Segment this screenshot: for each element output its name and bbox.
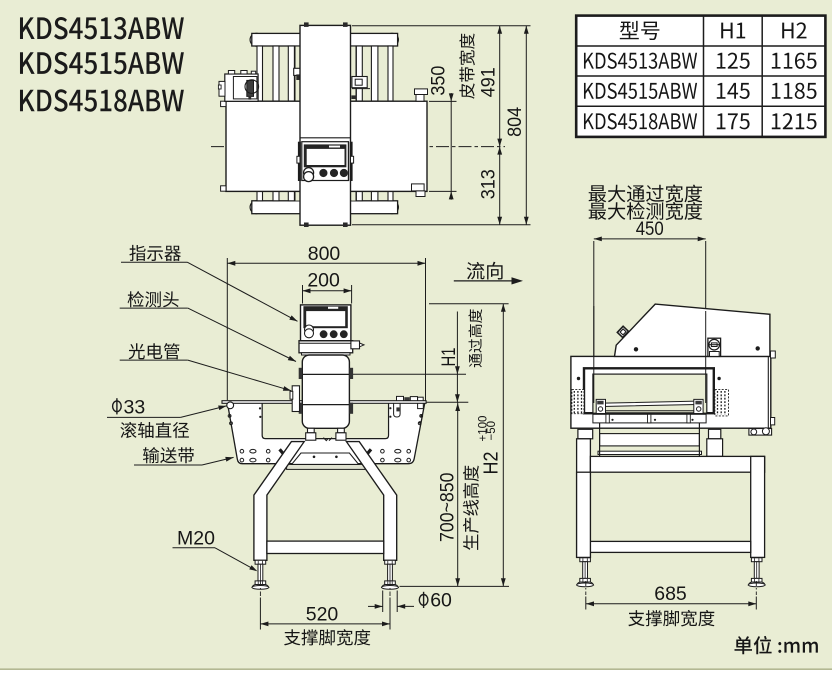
svg-text:313: 313 — [478, 169, 500, 199]
svg-text:350: 350 — [428, 65, 450, 95]
svg-text:H1: H1 — [438, 348, 460, 367]
svg-text:800: 800 — [308, 243, 341, 265]
svg-text:60: 60 — [430, 589, 452, 611]
svg-text:H2: H2 — [481, 452, 503, 475]
svg-text:804: 804 — [504, 107, 526, 137]
svg-text:685: 685 — [654, 583, 687, 605]
svg-text:33: 33 — [124, 397, 146, 419]
svg-text:−50: −50 — [486, 421, 498, 441]
svg-text:200: 200 — [307, 269, 340, 291]
svg-text:700~850: 700~850 — [437, 472, 459, 542]
svg-text:520: 520 — [306, 603, 339, 625]
svg-text:M20: M20 — [177, 528, 215, 550]
svg-text:450: 450 — [636, 218, 664, 240]
svg-text:491: 491 — [477, 67, 499, 97]
